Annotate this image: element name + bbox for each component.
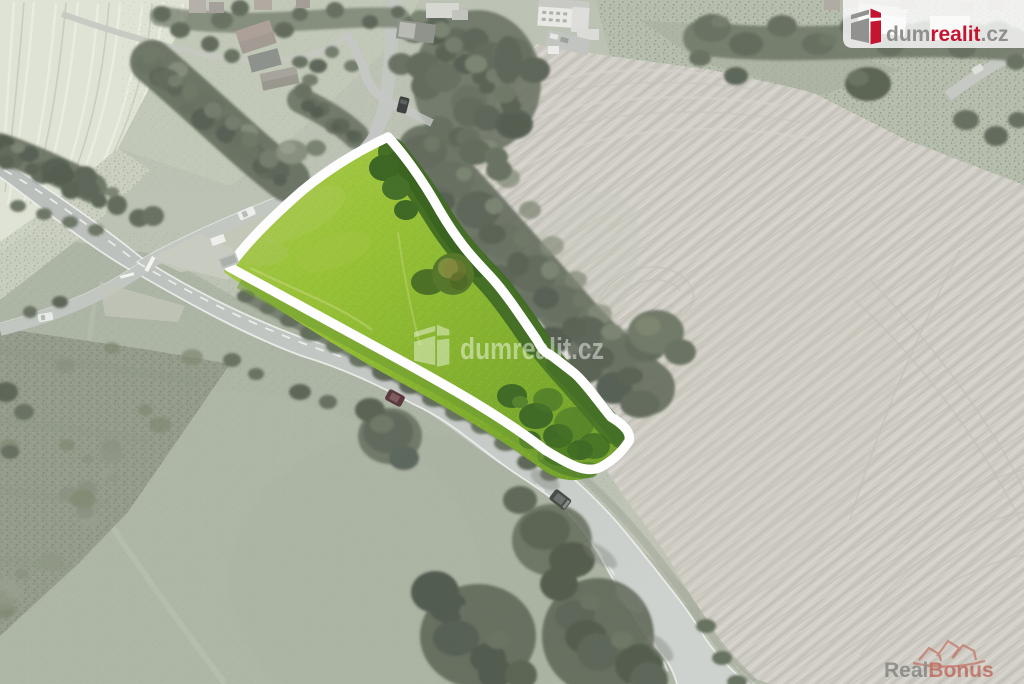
svg-text:RealBonus: RealBonus [884,659,994,682]
svg-text:dumrealit.cz: dumrealit.cz [460,331,604,366]
svg-text:dumrealit.cz: dumrealit.cz [886,23,1009,46]
